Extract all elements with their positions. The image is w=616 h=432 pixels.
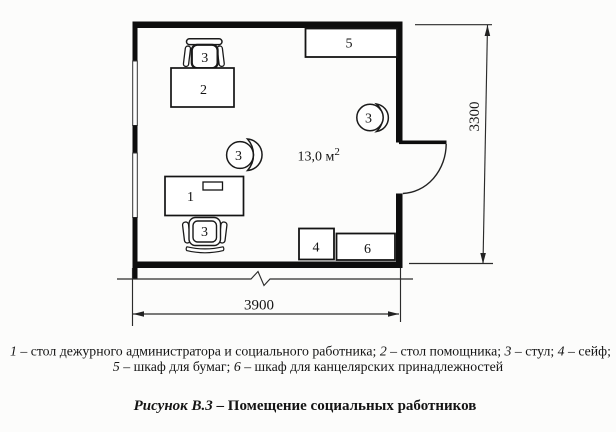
- svg-text:3300: 3300: [467, 102, 483, 132]
- svg-text:3: 3: [201, 51, 208, 66]
- svg-text:3: 3: [201, 225, 208, 240]
- svg-text:3: 3: [235, 149, 242, 164]
- svg-text:3: 3: [365, 112, 372, 127]
- svg-text:3900: 3900: [244, 298, 274, 314]
- svg-text:4: 4: [313, 241, 320, 256]
- svg-text:13,0 м2: 13,0 м2: [298, 146, 340, 165]
- svg-text:1 – стол дежурного администрат: 1 – стол дежурного администратора и соци…: [10, 343, 611, 358]
- svg-text:5 – шкаф для бумаг; 6 – шкаф д: 5 – шкаф для бумаг; 6 – шкаф для канцеля…: [113, 359, 504, 374]
- svg-text:6: 6: [364, 242, 371, 257]
- svg-text:Рисунок В.3 – Помещение социал: Рисунок В.3 – Помещение социальных работ…: [134, 398, 477, 414]
- svg-text:1: 1: [187, 190, 194, 205]
- svg-text:2: 2: [200, 83, 207, 98]
- svg-text:5: 5: [346, 37, 353, 52]
